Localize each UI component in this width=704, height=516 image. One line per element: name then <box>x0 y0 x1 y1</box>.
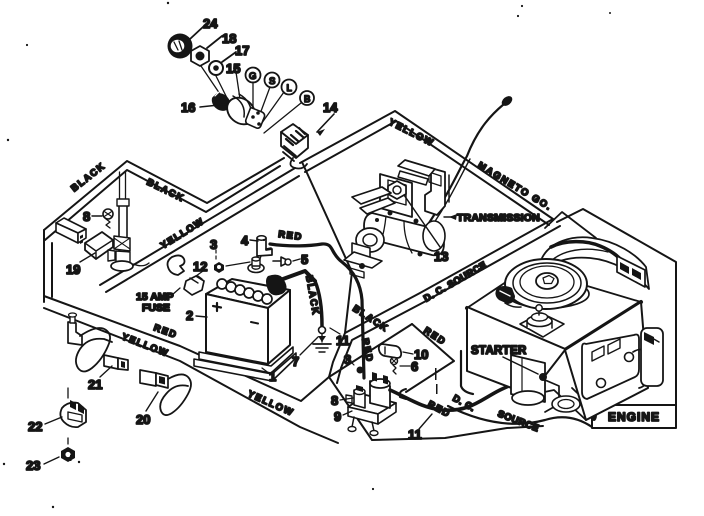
svg-text:11: 11 <box>336 333 350 348</box>
svg-text:22: 22 <box>28 419 42 434</box>
svg-text:S: S <box>269 76 275 87</box>
svg-text:G: G <box>249 71 256 82</box>
svg-text:17: 17 <box>235 43 249 58</box>
svg-text:2: 2 <box>186 308 193 323</box>
svg-text:3: 3 <box>210 237 217 252</box>
svg-text:1: 1 <box>269 369 276 384</box>
svg-text:8: 8 <box>331 393 338 408</box>
svg-text:ENGINE: ENGINE <box>608 410 660 424</box>
svg-text:8: 8 <box>83 209 90 224</box>
svg-text:TRANSMISSION: TRANSMISSION <box>457 212 540 224</box>
svg-text:14: 14 <box>323 100 338 115</box>
svg-text:STARTER: STARTER <box>471 345 527 357</box>
svg-text:21: 21 <box>88 377 102 392</box>
svg-text:3: 3 <box>344 352 351 367</box>
svg-text:13: 13 <box>434 249 448 264</box>
svg-text:9: 9 <box>334 409 341 424</box>
svg-text:L: L <box>287 83 292 94</box>
svg-text:16: 16 <box>181 100 195 115</box>
svg-text:4: 4 <box>241 233 249 248</box>
svg-text:7: 7 <box>292 354 299 369</box>
svg-text:23: 23 <box>26 458 40 473</box>
svg-text:B: B <box>304 94 310 105</box>
svg-text:11: 11 <box>408 427 422 442</box>
svg-text:6: 6 <box>411 359 418 374</box>
svg-text:5: 5 <box>301 252 308 267</box>
svg-text:FUSE: FUSE <box>142 302 170 314</box>
svg-text:12: 12 <box>193 259 207 274</box>
svg-text:24: 24 <box>203 16 218 31</box>
svg-text:20: 20 <box>136 412 150 427</box>
svg-text:19: 19 <box>66 262 80 277</box>
svg-text:15: 15 <box>226 61 240 76</box>
